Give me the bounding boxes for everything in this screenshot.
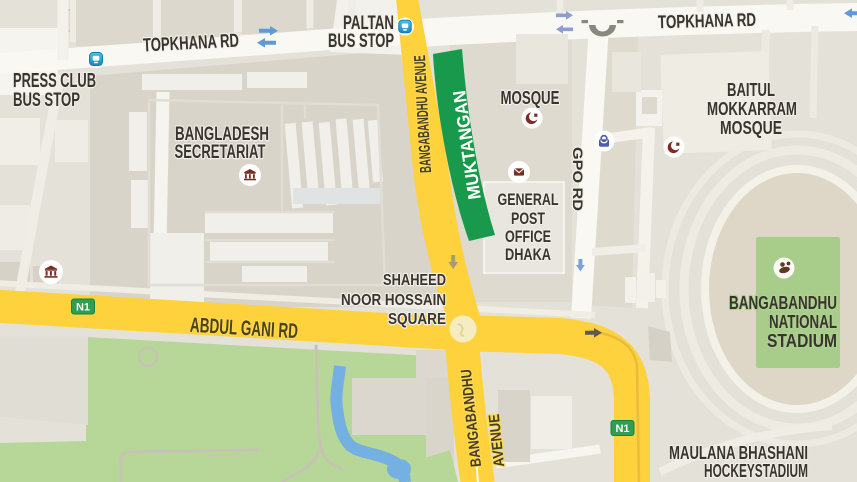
- svg-text:SHAHEED: SHAHEED: [383, 272, 446, 289]
- svg-text:OFFICE: OFFICE: [505, 227, 551, 246]
- svg-text:BUS STOP: BUS STOP: [328, 30, 394, 52]
- svg-text:NOOR HOSSAIN: NOOR HOSSAIN: [341, 292, 446, 309]
- svg-text:MOKKARRAM: MOKKARRAM: [707, 99, 797, 119]
- svg-text:N1: N1: [76, 302, 90, 314]
- svg-text:GPO RD: GPO RD: [570, 147, 586, 211]
- svg-text:SQUARE: SQUARE: [388, 311, 446, 328]
- svg-text:BAITUL: BAITUL: [727, 80, 775, 100]
- svg-text:BUS STOP: BUS STOP: [13, 89, 80, 111]
- svg-text:N1: N1: [615, 423, 629, 435]
- svg-text:DHAKA: DHAKA: [505, 245, 551, 264]
- svg-text:GENERAL: GENERAL: [498, 190, 559, 209]
- svg-text:MAULANA BHASHANI: MAULANA BHASHANI: [669, 443, 808, 463]
- svg-text:TOPKHANA RD: TOPKHANA RD: [658, 9, 757, 33]
- svg-text:BANGABANDHU: BANGABANDHU: [729, 293, 837, 313]
- svg-text:POST: POST: [511, 209, 545, 228]
- svg-text:SECRETARIAT: SECRETARIAT: [175, 142, 266, 163]
- svg-text:STADIUM: STADIUM: [767, 331, 837, 351]
- svg-text:HOCKEYSTADIUM: HOCKEYSTADIUM: [704, 461, 808, 481]
- svg-text:NATIONAL: NATIONAL: [769, 312, 837, 332]
- svg-text:MOSQUE: MOSQUE: [720, 118, 782, 138]
- svg-text:MOSQUE: MOSQUE: [501, 88, 560, 108]
